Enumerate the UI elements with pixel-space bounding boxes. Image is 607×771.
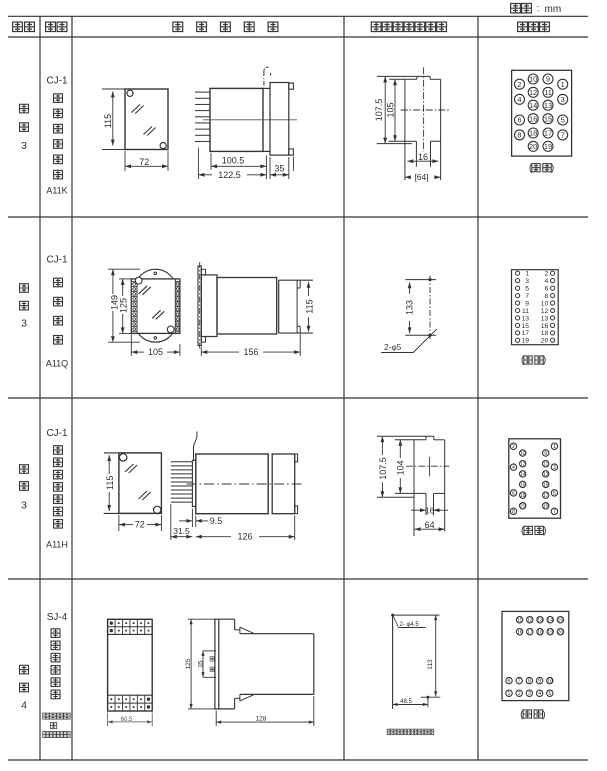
svg-text:35: 35 (198, 660, 205, 668)
svg-text:6: 6 (545, 286, 549, 293)
svg-text:CJ-1: CJ-1 (46, 75, 68, 86)
svg-text:16: 16 (517, 630, 523, 636)
svg-text:10: 10 (529, 75, 537, 84)
svg-text:13: 13 (537, 618, 543, 624)
svg-text:8: 8 (528, 678, 531, 684)
svg-text:φ4.5: φ4.5 (407, 622, 420, 628)
svg-text:φ5: φ5 (392, 343, 402, 352)
svg-text:2: 2 (518, 691, 521, 697)
svg-text:16: 16 (418, 152, 428, 162)
svg-text:18: 18 (529, 129, 537, 138)
svg-text:64: 64 (425, 520, 435, 530)
svg-text:16: 16 (425, 505, 435, 515)
svg-text:2: 2 (545, 271, 549, 278)
svg-text:15: 15 (543, 482, 549, 488)
svg-text:12: 12 (541, 308, 549, 315)
svg-text:8: 8 (545, 293, 549, 300)
svg-text:A11Q: A11Q (46, 359, 68, 369)
svg-text:113: 113 (427, 659, 434, 670)
svg-text:35: 35 (274, 163, 284, 173)
svg-text:12: 12 (527, 618, 533, 624)
svg-text:18: 18 (520, 493, 526, 499)
svg-text:14: 14 (520, 472, 526, 478)
svg-text:115: 115 (304, 299, 314, 313)
svg-text:12: 12 (520, 462, 526, 468)
svg-text:): ) (542, 709, 545, 720)
svg-text:9: 9 (525, 300, 529, 307)
svg-text:17: 17 (543, 493, 549, 499)
svg-text:16: 16 (529, 114, 537, 123)
svg-text:15: 15 (558, 618, 564, 624)
svg-text:CJ-1: CJ-1 (46, 428, 68, 439)
svg-text:107.5: 107.5 (378, 457, 388, 480)
svg-text:122.5: 122.5 (218, 170, 241, 180)
svg-text:60.5: 60.5 (121, 717, 133, 723)
svg-text:6: 6 (508, 678, 511, 684)
svg-text:115: 115 (105, 476, 115, 490)
svg-text:128: 128 (256, 716, 267, 723)
svg-text:13: 13 (541, 315, 549, 322)
svg-text:20: 20 (541, 338, 549, 345)
svg-text:3: 3 (21, 318, 27, 330)
svg-text:18: 18 (541, 330, 549, 337)
svg-text:11: 11 (543, 462, 548, 468)
svg-text:17: 17 (527, 630, 533, 636)
svg-text:133: 133 (405, 300, 415, 315)
svg-text:9: 9 (546, 75, 550, 84)
svg-text:4: 4 (538, 691, 541, 697)
svg-text:A11K: A11K (46, 186, 67, 196)
svg-text:10: 10 (547, 678, 553, 684)
svg-text:107.5: 107.5 (374, 99, 384, 122)
svg-text:115: 115 (103, 114, 113, 128)
svg-text:11: 11 (517, 618, 522, 624)
svg-text:126: 126 (237, 532, 252, 542)
svg-text:7: 7 (561, 131, 565, 140)
svg-text:7: 7 (553, 509, 556, 515)
svg-text:105: 105 (148, 347, 163, 357)
svg-text:9: 9 (544, 451, 547, 457)
svg-text:8: 8 (512, 509, 515, 515)
svg-text:16: 16 (520, 482, 526, 488)
svg-text:14: 14 (529, 101, 537, 110)
svg-text:3: 3 (21, 500, 27, 512)
svg-text:125: 125 (119, 298, 129, 313)
svg-text:3: 3 (553, 465, 556, 471)
svg-text:20: 20 (558, 630, 564, 636)
svg-text:156: 156 (243, 347, 258, 357)
svg-text:9.5: 9.5 (210, 516, 223, 526)
svg-text:mm: mm (545, 4, 562, 15)
svg-text:15: 15 (544, 114, 552, 123)
svg-text:1: 1 (553, 444, 556, 450)
svg-text:): ) (551, 163, 554, 174)
svg-text:20: 20 (529, 142, 537, 151)
svg-text:9: 9 (538, 678, 541, 684)
svg-text::: : (537, 4, 540, 15)
svg-text:13: 13 (521, 315, 529, 322)
svg-text:100.5: 100.5 (222, 155, 245, 165)
svg-text:12: 12 (529, 88, 537, 97)
svg-text:2: 2 (517, 80, 521, 89)
svg-text:10: 10 (520, 451, 526, 457)
svg-text:5: 5 (525, 286, 529, 293)
svg-text:11: 11 (544, 88, 552, 97)
svg-text:): ) (543, 355, 546, 366)
svg-text:8: 8 (517, 131, 521, 140)
svg-text:3: 3 (561, 95, 565, 104)
svg-text:4: 4 (517, 95, 521, 104)
svg-text:3: 3 (528, 691, 531, 697)
svg-text:4: 4 (545, 278, 549, 285)
svg-text:7: 7 (525, 293, 529, 300)
svg-text:17: 17 (521, 330, 529, 337)
svg-text:19: 19 (521, 338, 529, 345)
svg-text:15: 15 (521, 323, 529, 330)
svg-text:31.5: 31.5 (173, 526, 190, 536)
svg-text:13: 13 (543, 472, 549, 478)
svg-text:2: 2 (512, 444, 515, 450)
svg-text:2-: 2- (400, 622, 405, 628)
svg-text:3: 3 (525, 278, 529, 285)
svg-text:17: 17 (544, 129, 552, 138)
svg-text:4: 4 (21, 699, 27, 711)
svg-text:SJ-4: SJ-4 (47, 612, 68, 623)
svg-text:5: 5 (561, 116, 565, 125)
svg-text:7: 7 (518, 678, 521, 684)
svg-text:19: 19 (543, 504, 549, 510)
svg-text:10: 10 (541, 300, 549, 307)
svg-text:19: 19 (544, 142, 552, 151)
svg-text:2-: 2- (384, 343, 391, 352)
svg-text:[64]: [64] (414, 172, 428, 182)
svg-text:13: 13 (544, 101, 552, 110)
svg-text:5: 5 (553, 491, 556, 497)
svg-text:6: 6 (517, 116, 521, 125)
svg-text:14: 14 (547, 618, 553, 624)
svg-text:): ) (543, 526, 546, 537)
svg-text:1: 1 (561, 80, 565, 89)
svg-text:11: 11 (522, 308, 529, 315)
svg-text:19: 19 (547, 630, 553, 636)
svg-text:105: 105 (386, 102, 396, 117)
svg-text:104: 104 (396, 460, 406, 475)
svg-text:48.5: 48.5 (400, 699, 412, 705)
svg-text:72: 72 (139, 157, 149, 167)
svg-text:72: 72 (135, 520, 145, 530)
svg-text:18: 18 (537, 630, 543, 636)
svg-text:16: 16 (541, 323, 549, 330)
svg-text:125: 125 (185, 658, 192, 669)
svg-text:6: 6 (512, 491, 515, 497)
svg-text:CJ-1: CJ-1 (46, 255, 68, 266)
svg-text:3: 3 (21, 140, 27, 152)
svg-text:5: 5 (548, 691, 551, 697)
svg-text:1: 1 (508, 691, 511, 697)
svg-text:A11H: A11H (46, 540, 68, 550)
svg-text:20: 20 (520, 504, 526, 510)
svg-text:4: 4 (512, 465, 515, 471)
svg-text:1: 1 (525, 271, 529, 278)
